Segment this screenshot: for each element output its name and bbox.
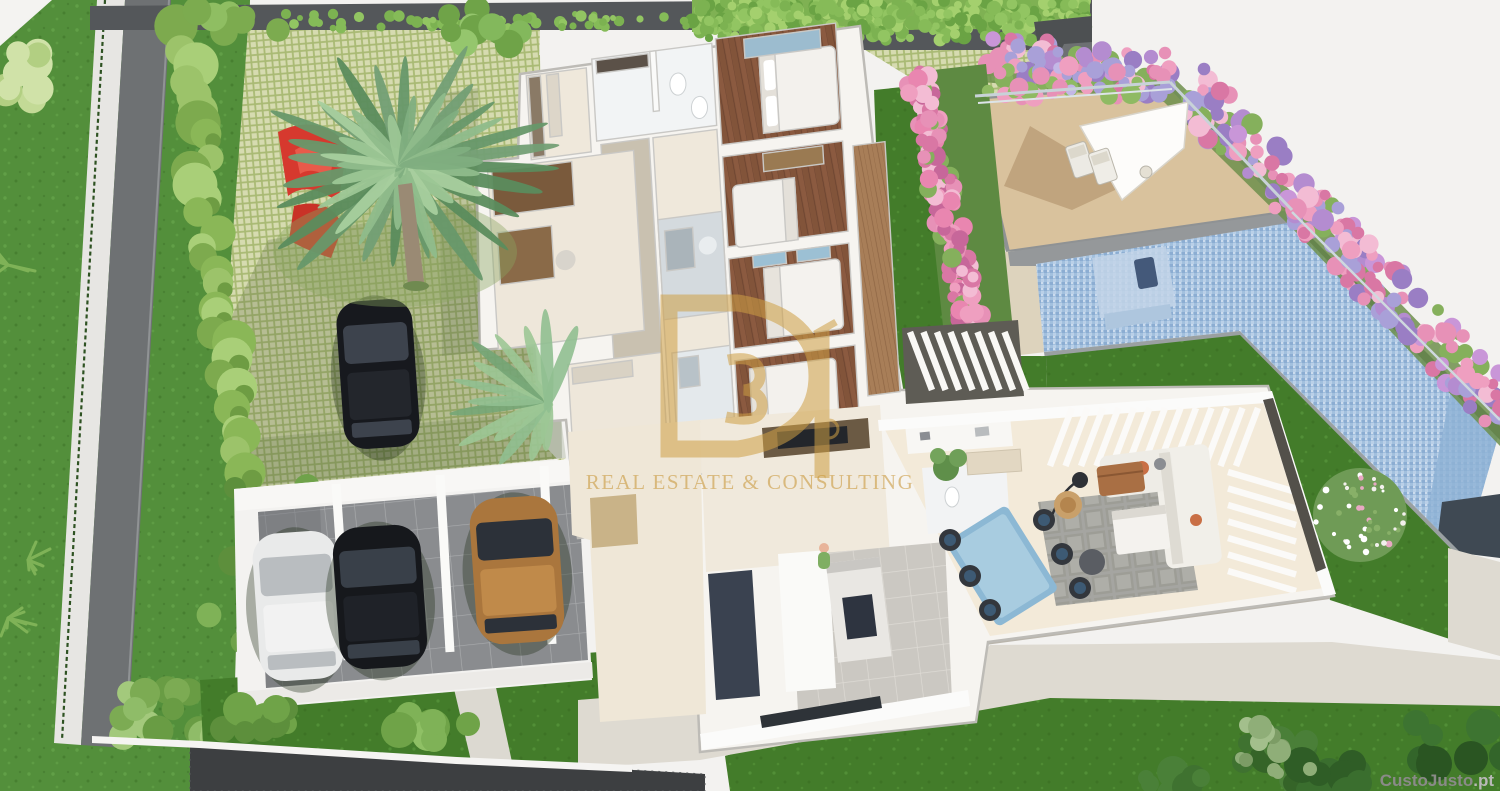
- svg-text:REAL ESTATE & CONSULTING: REAL ESTATE & CONSULTING: [586, 470, 915, 494]
- svg-text:CustoJusto.pt: CustoJusto.pt: [1380, 771, 1495, 790]
